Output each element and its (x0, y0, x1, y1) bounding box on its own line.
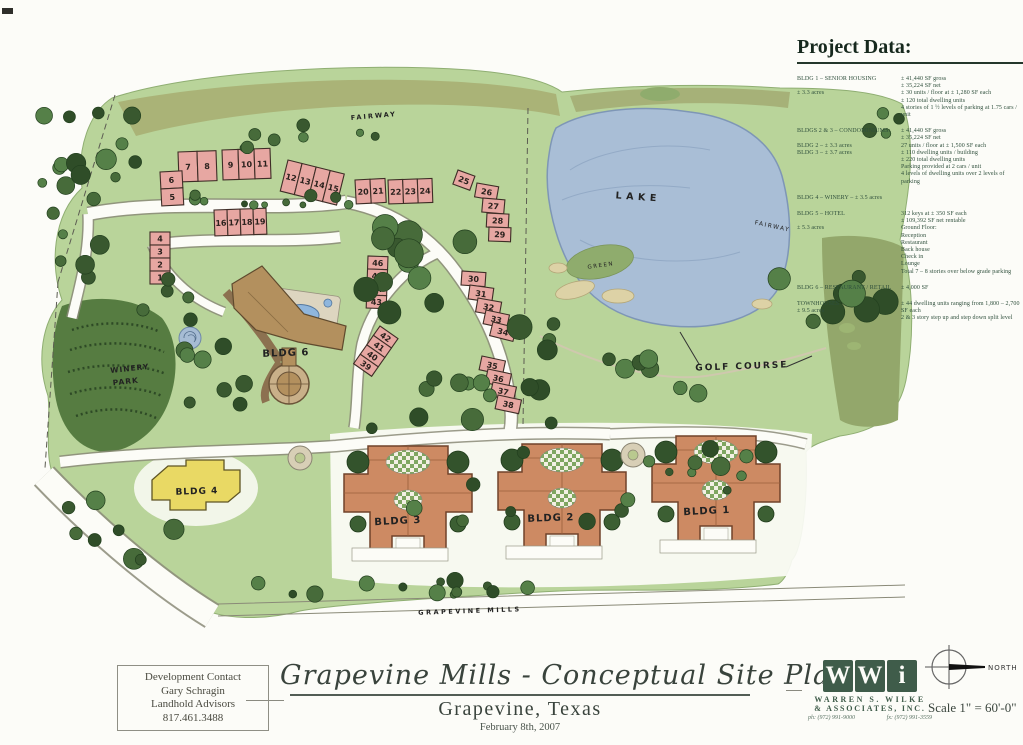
townhouse-cluster: 2021 (355, 178, 386, 204)
townhouse-unit-number: 2 (157, 261, 163, 270)
tree (58, 230, 67, 239)
townhouse-unit-number: 5 (169, 193, 175, 202)
tree (111, 172, 121, 182)
firm-fax: fx: (972) 991-3559 (887, 715, 932, 721)
tree (457, 515, 469, 527)
project-data-line: 4 levels of dwelling units over 2 levels… (901, 171, 1023, 185)
townhouse-unit-number: 46 (372, 259, 384, 268)
tree (621, 493, 635, 507)
firm-logo-letter: i (887, 660, 917, 692)
project-data-line: BLDG 2 – ± 3.3 acres (797, 143, 897, 150)
tree (71, 165, 90, 184)
project-data-line: Back house (901, 247, 1023, 254)
tree (378, 301, 401, 324)
tree (447, 572, 463, 588)
project-data-line: Ground Floor: (901, 225, 1023, 232)
townhouse-unit-number: 10 (241, 160, 253, 169)
north-arrow (949, 664, 985, 670)
tree (250, 201, 259, 210)
townhouse-unit-number: 17 (228, 218, 239, 227)
tree (521, 379, 538, 396)
project-data-rule (797, 62, 1023, 64)
tree (96, 149, 117, 170)
tree (116, 138, 128, 150)
tree (300, 202, 306, 208)
project-data-line: ± 4,000 SF (901, 285, 1023, 292)
tree (262, 202, 268, 208)
tree (473, 375, 489, 391)
project-data-line: ± 220 total dwelling units (901, 157, 1023, 164)
project-data-line: BLDG 1 – SENIOR HOUSING (797, 76, 897, 83)
bldg-4-label: BLDG 4 (175, 486, 218, 497)
townhouse-unit-number: 24 (419, 187, 431, 196)
project-data-line: BLDG 3 – ± 3.7 acres (797, 150, 897, 157)
townhouse-unit-number: 28 (492, 216, 504, 226)
tree (688, 456, 702, 470)
bldg-2-label: BLDG 2 (527, 512, 574, 525)
townhouse-cluster: 16171819 (214, 208, 267, 236)
project-data-line: Reception (901, 233, 1023, 240)
tree (394, 239, 423, 268)
tree (666, 468, 674, 476)
townhouse-unit-number: 18 (241, 218, 253, 227)
tree (90, 235, 109, 254)
firm-name-line2: & ASSOCIATES, INC. (804, 704, 936, 713)
project-data-line (797, 83, 897, 90)
tree (547, 318, 560, 331)
townhouse-unit-number: 23 (405, 187, 416, 196)
tree (63, 111, 75, 123)
project-data-section: BLDG 1 – SENIOR HOUSING ± 3.3 acres± 41,… (797, 76, 1023, 119)
tree (410, 408, 428, 426)
tree (283, 199, 290, 206)
site-plan-sheet: 7891011651213141516171819432120212223242… (0, 0, 1023, 745)
project-data-line: ± 3.3 acres (797, 90, 897, 97)
project-data-line: TOWNHOUSES (797, 301, 897, 308)
tree (639, 350, 657, 368)
tree (38, 178, 47, 187)
project-data-line: ± 44 dwelling units ranging from 1,800 –… (901, 301, 1023, 315)
project-data-line: BLDGS 2 & 3 – CONDOMINIUMS: (797, 128, 897, 135)
title-block: Grapevine Mills - Conceptual Site Plan G… (280, 660, 760, 733)
tree (70, 527, 83, 540)
project-data-line: ± 9.5 acres (797, 308, 897, 315)
project-data-line: Total 7 – 8 stories over below grade par… (901, 269, 1023, 276)
tree (299, 132, 309, 142)
tree (366, 423, 377, 434)
townhouse-unit-number: 22 (390, 188, 401, 197)
tree (241, 201, 247, 207)
firm-logo-letter: W (823, 660, 853, 692)
north-label: NORTH (988, 664, 1018, 672)
tree (674, 381, 688, 395)
scan-corner-mark (2, 8, 13, 14)
firm-block: W W i WARREN S. WILKE & ASSOCIATES, INC.… (804, 660, 936, 721)
tree (249, 129, 261, 141)
tree (55, 256, 66, 267)
townhouse-unit-number: 30 (468, 274, 480, 284)
scale-note: Scale 1" = 60'-0" (928, 700, 1017, 716)
project-data-section: BLDG 5 – HOTEL ± 5.3 acres312 keys at ± … (797, 211, 1023, 276)
townhouse-cluster: 78 (178, 151, 217, 182)
tree (643, 456, 654, 467)
tree (517, 446, 529, 458)
project-data-line: ± 41,440 SF gross (901, 128, 1023, 135)
firm-logo: W W i (804, 660, 936, 692)
plan-title: Grapevine Mills - Conceptual Site Plan (280, 660, 760, 691)
tree (453, 230, 477, 254)
tree (76, 255, 95, 274)
tree (113, 525, 124, 536)
tree (487, 586, 499, 598)
tree (425, 293, 444, 312)
project-data-line: ± 35,224 SF net (901, 135, 1023, 142)
tree (408, 267, 431, 290)
title-rule (290, 694, 750, 696)
tree (452, 587, 462, 597)
contact-line: 817.461.3488 (120, 712, 266, 726)
tree (47, 207, 59, 219)
project-data-line: ± 5.3 acres (797, 225, 897, 232)
project-data-line (901, 195, 1023, 202)
townhouse-unit-number: 8 (204, 162, 210, 171)
street-label-grapevine-mills: GRAPEVINE MILLS (418, 605, 522, 617)
tree (251, 576, 265, 590)
tree (451, 374, 469, 392)
townhouse-unit-number: 7 (185, 163, 191, 172)
project-data-line: 27 units / floor at ± 1,500 SF each (901, 143, 1023, 150)
project-data-line: 4 stories of 1 ½ levels of parking at 1.… (901, 105, 1023, 119)
tree (88, 534, 101, 547)
project-data-line: BLDG 4 – WINERY – ± 3.5 acres (797, 195, 897, 202)
tree (359, 576, 374, 591)
project-data-panel: Project Data: BLDG 1 – SENIOR HOUSING ± … (797, 36, 1023, 332)
project-data-section: TOWNHOUSES± 9.5 acres± 44 dwelling units… (797, 301, 1023, 323)
tree (124, 107, 141, 124)
tree (689, 385, 707, 403)
tree (137, 304, 149, 316)
contact-line: Landhold Advisors (120, 698, 266, 712)
townhouse-cluster: 28 (486, 213, 509, 228)
townhouse-unit-number: 19 (254, 217, 266, 226)
tree (768, 268, 790, 290)
tree (506, 507, 516, 517)
townhouse-unit-number: 6 (168, 176, 174, 185)
tree (354, 277, 378, 301)
tree (184, 397, 195, 408)
project-data-section: BLDG 6 – RESTAURANT / RETAIL± 4,000 SF (797, 285, 1023, 292)
project-data-line: BLDG 6 – RESTAURANT / RETAIL (797, 285, 897, 292)
townhouse-unit-number: 31 (475, 289, 488, 300)
tree (233, 397, 247, 411)
tree (371, 132, 379, 140)
project-data-section: BLDGS 2 & 3 – CONDOMINIUMS: BLDG 2 – ± 3… (797, 128, 1023, 186)
firm-phone-fax: ph: (972) 991-9000 fx: (972) 991-3559 (804, 715, 936, 721)
tree (466, 478, 480, 492)
tree (507, 315, 532, 340)
project-data-line (797, 218, 897, 225)
townhouse-cluster: 65 (160, 171, 184, 206)
tree (268, 134, 280, 146)
townhouse-unit-number: 27 (487, 201, 499, 211)
project-data-line: ± 110 dwelling units / building (901, 150, 1023, 157)
project-data-heading: Project Data: (797, 36, 1023, 59)
tree (399, 583, 407, 591)
tree (545, 417, 557, 429)
townhouse-unit-number: 21 (372, 186, 384, 196)
tree (331, 192, 341, 202)
tree (190, 190, 200, 200)
project-data-line: Lounge (901, 261, 1023, 268)
townhouse-unit-number: 29 (494, 230, 506, 239)
project-data-line: 2 & 3 story step up and step down split … (901, 315, 1023, 322)
tree (87, 192, 101, 206)
tree (427, 371, 442, 386)
tree (135, 554, 146, 565)
tree (740, 450, 753, 463)
tree (62, 501, 75, 514)
tree (297, 119, 310, 132)
tree (92, 107, 104, 119)
project-data-line: Restaurant (901, 240, 1023, 247)
tree (702, 441, 719, 458)
tree (372, 227, 395, 250)
tree (344, 200, 353, 209)
development-contact-box: Development Contact Gary Schragin Landho… (117, 665, 269, 731)
plan-date: February 8th, 2007 (280, 722, 760, 733)
bldg-6-label: BLDG 6 (262, 347, 309, 360)
tree (289, 590, 297, 598)
townhouse-unit-number: 16 (215, 219, 227, 228)
project-data-line: ± 120 total dwelling units (901, 98, 1023, 105)
project-data-line: ± 109,392 SF net rentable (901, 218, 1023, 225)
townhouse-unit-number: 11 (257, 159, 269, 168)
tree (579, 513, 596, 530)
project-data-line: ± 41,440 SF gross (901, 76, 1023, 83)
tree (217, 383, 232, 398)
firm-name-line1: WARREN S. WILKE (804, 695, 936, 704)
townhouse-cluster: 222324 (388, 178, 433, 204)
tree (723, 486, 731, 494)
tree (161, 285, 173, 297)
firm-logo-letter: W (855, 660, 885, 692)
plan-city: Grapevine, Texas (280, 698, 760, 721)
contact-line: Gary Schragin (120, 685, 266, 699)
tree (603, 353, 616, 366)
contact-line: Development Contact (120, 671, 266, 685)
tree (164, 519, 184, 539)
project-data-section: BLDG 4 – WINERY – ± 3.5 acres (797, 195, 1023, 202)
north-compass: NORTH (925, 644, 1023, 690)
tree (215, 338, 232, 355)
tree (537, 340, 557, 360)
townhouse-unit-number: 4 (157, 235, 163, 244)
tree (483, 389, 496, 402)
firm-phone: ph: (972) 991-9000 (808, 715, 855, 721)
tree (521, 581, 535, 595)
tree (737, 471, 747, 481)
tree (307, 586, 323, 602)
townhouse-cluster: 29 (489, 227, 511, 242)
tree (356, 129, 363, 136)
tree (429, 585, 445, 601)
tree (616, 359, 635, 378)
tree (86, 491, 105, 510)
tree (194, 351, 211, 368)
tree (461, 408, 483, 430)
tree (129, 156, 142, 169)
townhouse-cluster: 30 (461, 271, 486, 287)
townhouse-unit-number: 20 (357, 187, 369, 197)
project-data-line: Check in (901, 254, 1023, 261)
townhouse-cluster: 27 (482, 198, 505, 214)
project-data-line: ± 30 units / floor at ± 1,280 SF each (901, 90, 1023, 97)
tree (406, 500, 422, 516)
tree (200, 197, 208, 205)
project-data-line: 312 keys at ± 350 SF each (901, 211, 1023, 218)
tree (161, 273, 175, 287)
tree (711, 457, 730, 476)
project-data-line (797, 135, 897, 142)
tree (241, 141, 254, 154)
tree (236, 375, 253, 392)
project-data-sections: BLDG 1 – SENIOR HOUSING ± 3.3 acres± 41,… (797, 76, 1023, 323)
tree (180, 348, 195, 363)
tree (183, 292, 194, 303)
townhouse-unit-number: 9 (228, 161, 234, 170)
tree (36, 107, 53, 124)
tree (305, 189, 317, 201)
tree (184, 313, 198, 327)
townhouse-unit-number: 3 (157, 248, 163, 257)
project-data-line: BLDG 5 – HOTEL (797, 211, 897, 218)
